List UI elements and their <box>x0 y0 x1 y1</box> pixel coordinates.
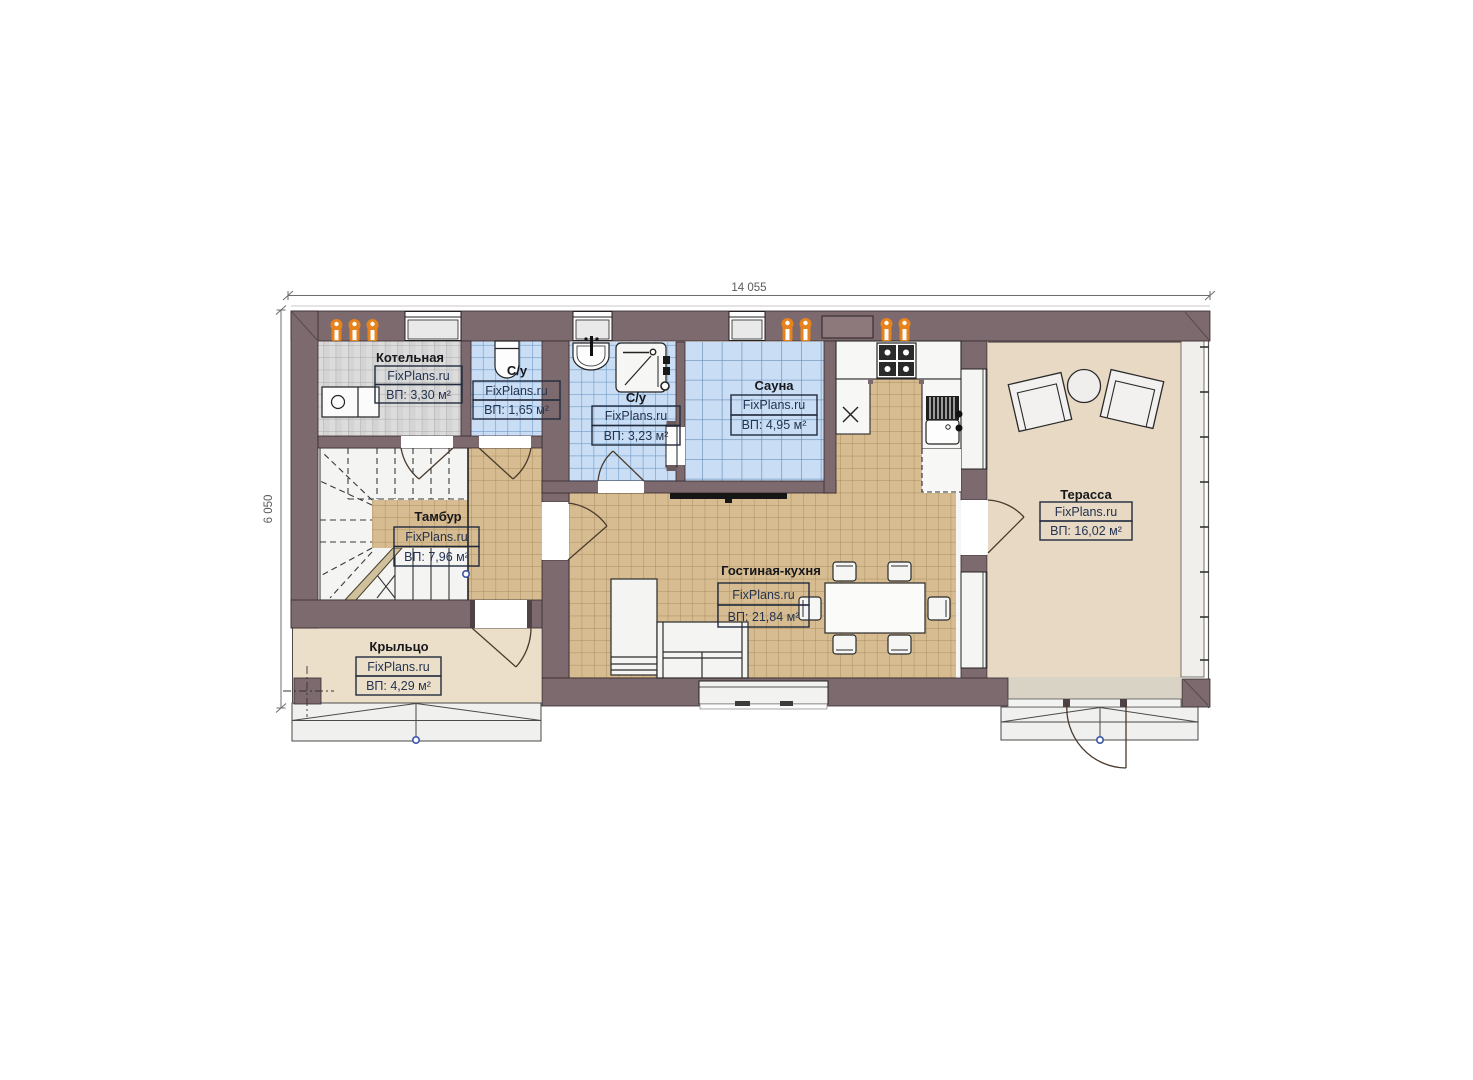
svg-text:Котельная: Котельная <box>376 350 444 365</box>
svg-text:Терасса: Терасса <box>1060 487 1112 502</box>
svg-text:FixPlans.ru: FixPlans.ru <box>743 398 806 412</box>
svg-text:6 050: 6 050 <box>263 495 275 524</box>
svg-text:ВП: 21,84 м²: ВП: 21,84 м² <box>728 610 800 624</box>
svg-text:FixPlans.ru: FixPlans.ru <box>1055 505 1118 519</box>
svg-text:Тамбур: Тамбур <box>414 509 461 524</box>
svg-text:С/у: С/у <box>507 363 528 378</box>
svg-text:ВП: 4,95 м²: ВП: 4,95 м² <box>742 418 807 432</box>
svg-text:FixPlans.ru: FixPlans.ru <box>485 384 548 398</box>
svg-text:FixPlans.ru: FixPlans.ru <box>387 369 450 383</box>
svg-text:Гостиная-кухня: Гостиная-кухня <box>721 563 821 578</box>
svg-text:FixPlans.ru: FixPlans.ru <box>605 409 668 423</box>
svg-text:ВП: 3,30 м²: ВП: 3,30 м² <box>386 388 451 402</box>
svg-text:Крыльцо: Крыльцо <box>369 639 428 654</box>
svg-text:С/у: С/у <box>626 390 647 405</box>
svg-text:FixPlans.ru: FixPlans.ru <box>405 530 468 544</box>
svg-text:Сауна: Сауна <box>754 378 794 393</box>
svg-text:14 055: 14 055 <box>731 282 766 294</box>
svg-text:ВП: 7,96 м²: ВП: 7,96 м² <box>404 550 469 564</box>
svg-text:ВП: 16,02 м²: ВП: 16,02 м² <box>1050 524 1122 538</box>
svg-text:ВП: 1,65 м²: ВП: 1,65 м² <box>484 403 549 417</box>
svg-text:ВП: 3,23 м²: ВП: 3,23 м² <box>604 429 669 443</box>
svg-text:FixPlans.ru: FixPlans.ru <box>732 588 795 602</box>
svg-text:FixPlans.ru: FixPlans.ru <box>367 660 430 674</box>
svg-text:ВП: 4,29 м²: ВП: 4,29 м² <box>366 679 431 693</box>
